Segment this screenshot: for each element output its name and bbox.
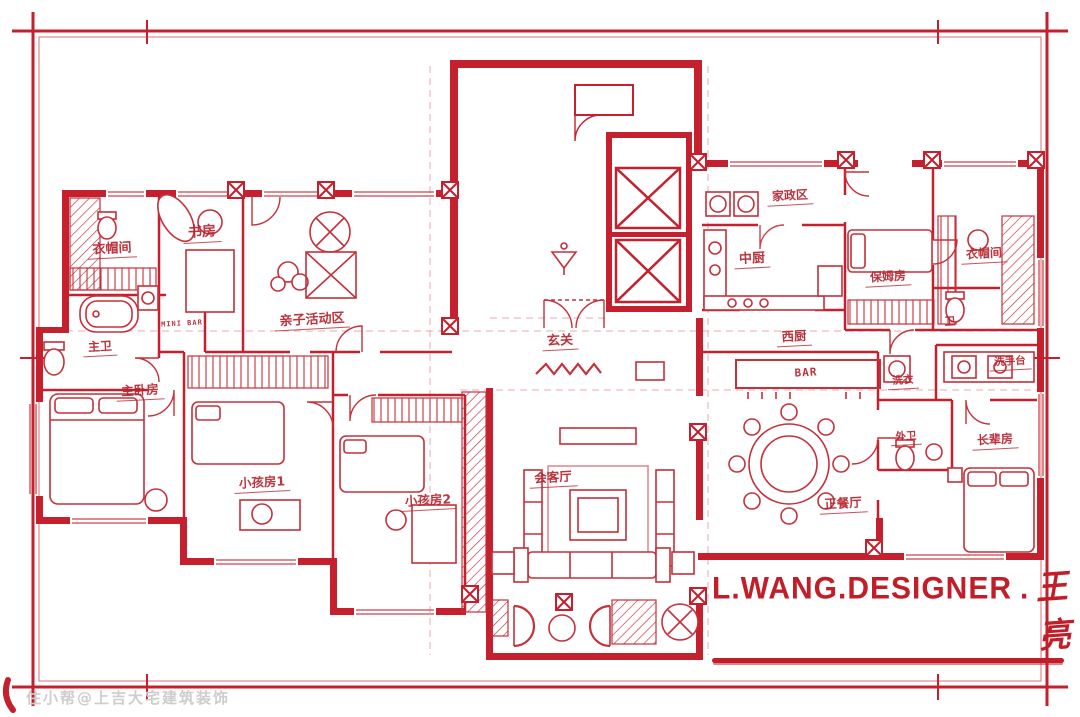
room-label-kids-activity: 亲子活动区 — [274, 307, 350, 332]
room-label-elders-room: 长辈房 — [972, 429, 1019, 450]
room-label-bar: BAR — [789, 365, 823, 381]
room-label-guest-bath: 外卫 — [890, 428, 922, 447]
room-label-closet-right: 衣帽间 — [961, 243, 1008, 264]
room-label-reception: 会客厅 — [529, 465, 578, 488]
watermark: 住小帮@上吉大宅建筑装饰 — [26, 687, 230, 708]
wall-piers — [228, 152, 1044, 610]
room-label-chinese-kitchen: 中厨 — [733, 247, 770, 270]
room-label-closet-left: 衣帽间 — [87, 236, 137, 260]
room-label-housekeeping: 家政区 — [767, 185, 814, 206]
room-label-master-bedroom: 主卧房 — [116, 378, 165, 401]
room-label-study: 书房 — [182, 220, 221, 244]
room-label-nanny-room: 保姆房 — [865, 266, 912, 287]
floorplan-page: 衣帽间 书房 亲子活动区 MINI BAR 主卫 主卧房 小孩房1 小孩房2 玄… — [0, 0, 1080, 717]
room-label-bathroom: 卫 — [939, 312, 961, 331]
room-label-foyer: 玄关 — [541, 329, 578, 352]
signature-separator: . — [1020, 571, 1029, 607]
room-label-master-bath: 主卫 — [83, 337, 118, 358]
room-label-kids-room-1: 小孩房1 — [233, 470, 290, 494]
room-label-kids-room-2: 小孩房2 — [399, 488, 456, 512]
room-label-wash-counter: 洗手台 — [989, 352, 1031, 371]
room-label-western-kitchen: 西厨 — [776, 325, 812, 348]
signature-latin: L.WANG.DESIGNER — [712, 571, 1012, 607]
room-label-laundry: 洗衣 — [887, 372, 919, 391]
signature-underline — [712, 658, 1064, 663]
elevator-shafts — [575, 85, 680, 302]
signature-name: 王亮 — [1034, 560, 1073, 659]
designer-signature: L.WANG.DESIGNER . 王亮 — [712, 563, 1070, 663]
room-label-formal-dining: 正餐厅 — [819, 491, 868, 514]
